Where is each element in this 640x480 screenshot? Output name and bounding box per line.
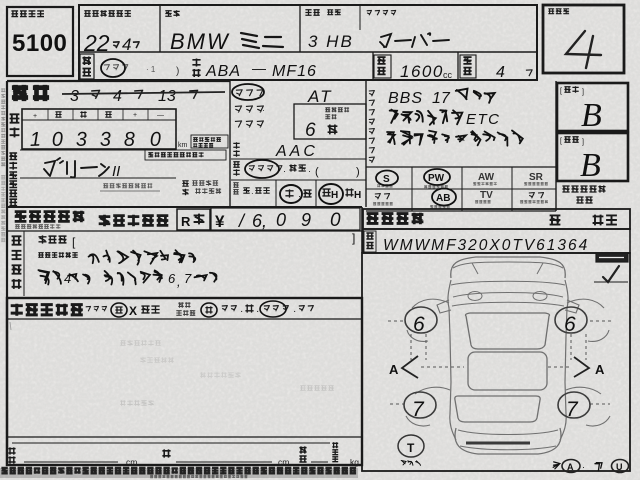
svg-text:0: 0 [51,129,63,151]
svg-text:·: · [283,166,286,176]
svg-text:+: + [33,113,37,120]
svg-text:PW: PW [428,173,445,184]
svg-text:6: 6 [413,313,425,336]
svg-text:]: ] [582,139,584,146]
svg-text:]: ] [352,231,355,245]
svg-text:·: · [308,166,311,176]
svg-text:·: · [262,105,265,115]
svg-text:WMWMF320X0TV61364: WMWMF320X0TV61364 [383,237,589,254]
svg-text:22: 22 [83,30,110,56]
svg-text:MF16: MF16 [272,63,317,80]
svg-text:9: 9 [301,210,311,230]
svg-text:—: — [157,112,164,119]
svg-text:6,: 6, [252,211,267,231]
svg-text:·: · [298,191,301,201]
svg-text:4: 4 [113,88,122,105]
svg-text:B: B [581,97,602,134]
svg-text:3: 3 [75,129,87,151]
svg-text:A: A [595,362,605,377]
svg-text:H: H [354,190,361,201]
svg-text:13: 13 [158,88,176,105]
svg-text:·: · [240,306,243,317]
svg-text:,: , [177,274,181,289]
svg-text:cc: cc [443,70,453,80]
svg-text:S: S [383,174,390,185]
svg-text:AB: AB [436,193,450,204]
svg-text:ETC: ETC [466,111,501,128]
svg-text:AAC: AAC [275,143,318,160]
svg-text:U: U [616,462,623,472]
svg-text:kg: kg [350,457,359,467]
svg-text:H: H [331,190,338,201]
svg-text:AW: AW [478,172,495,183]
svg-text:8: 8 [123,129,135,151]
svg-text:X: X [129,304,137,318]
svg-text:17: 17 [432,90,451,107]
svg-text:· 1: · 1 [146,65,156,74]
svg-text:4: 4 [496,64,505,81]
svg-text:ABA: ABA [205,63,241,80]
svg-text:): ) [356,166,360,178]
svg-text:cm: cm [278,457,289,467]
svg-text:4: 4 [64,271,71,286]
svg-text:—: — [252,60,266,76]
svg-text:7: 7 [412,398,425,421]
svg-text:AT: AT [307,87,332,106]
svg-text:TV: TV [480,190,493,201]
svg-text:7: 7 [566,398,579,421]
svg-text:BMW: BMW [170,29,230,54]
svg-text:5100: 5100 [12,30,67,57]
svg-text:cm: cm [126,457,137,467]
svg-text:A: A [389,362,399,377]
svg-text:¥: ¥ [215,212,225,231]
svg-text:A: A [567,462,574,472]
svg-text:·: · [251,189,254,198]
svg-text:+: + [133,112,137,119]
svg-text:·: · [582,462,585,472]
svg-text:6: 6 [168,271,176,286]
svg-text:7: 7 [184,271,192,286]
svg-text:SR: SR [529,172,544,183]
svg-text:3: 3 [70,88,79,105]
svg-text:B: B [580,147,601,184]
svg-text:BBS: BBS [388,90,423,107]
svg-text:1600: 1600 [400,62,444,81]
svg-text:3: 3 [99,129,111,151]
svg-text:·: · [256,306,259,317]
svg-text:3 HB: 3 HB [308,32,354,51]
svg-text:[: [ [560,138,562,145]
svg-text:6: 6 [564,313,576,336]
svg-text:1: 1 [29,129,41,151]
svg-text:0: 0 [330,210,341,231]
svg-text:[: [ [560,88,562,95]
svg-text:T: T [407,441,415,455]
svg-text:R: R [181,214,191,229]
svg-text:km: km [178,142,188,149]
svg-text:): ) [176,66,179,77]
svg-text:·: · [341,190,344,200]
svg-text:]: ] [582,89,584,96]
svg-text:·: · [293,306,296,317]
svg-text:(: ( [315,166,319,178]
svg-text:6: 6 [305,120,316,141]
svg-text:4: 4 [122,35,131,54]
svg-text:0: 0 [276,210,286,230]
svg-text:0: 0 [149,129,161,151]
